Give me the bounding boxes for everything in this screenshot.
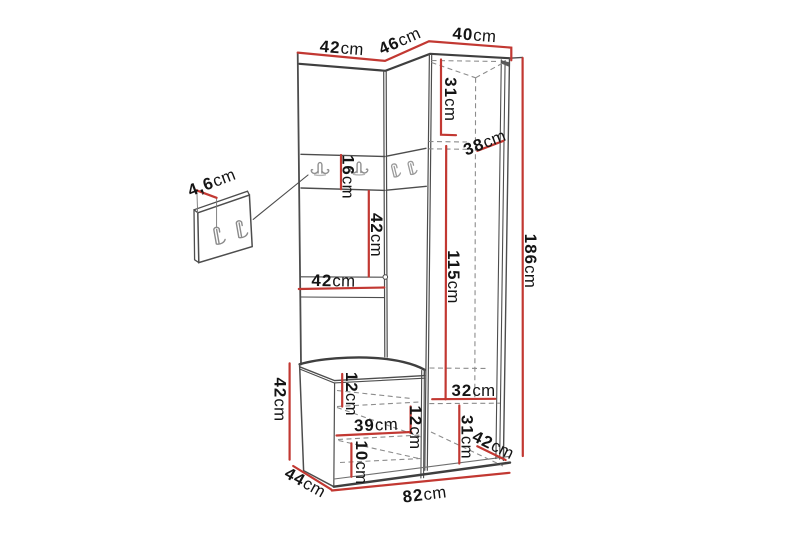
svg-text:10cm: 10cm — [352, 440, 371, 484]
svg-text:39cm: 39cm — [354, 415, 399, 436]
svg-text:31cm: 31cm — [441, 77, 460, 121]
svg-text:115cm: 115cm — [444, 250, 463, 304]
svg-text:42cm: 42cm — [367, 213, 386, 257]
svg-text:40cm: 40cm — [452, 24, 497, 46]
svg-text:32cm: 32cm — [451, 381, 495, 400]
svg-text:12cm: 12cm — [342, 372, 361, 416]
svg-text:186cm: 186cm — [521, 234, 540, 288]
svg-text:42cm: 42cm — [311, 271, 355, 291]
svg-text:42cm: 42cm — [270, 377, 289, 421]
svg-text:16cm: 16cm — [338, 155, 357, 199]
svg-text:42cm: 42cm — [319, 37, 364, 59]
svg-text:12cm: 12cm — [406, 405, 425, 449]
svg-text:31cm: 31cm — [458, 415, 477, 459]
